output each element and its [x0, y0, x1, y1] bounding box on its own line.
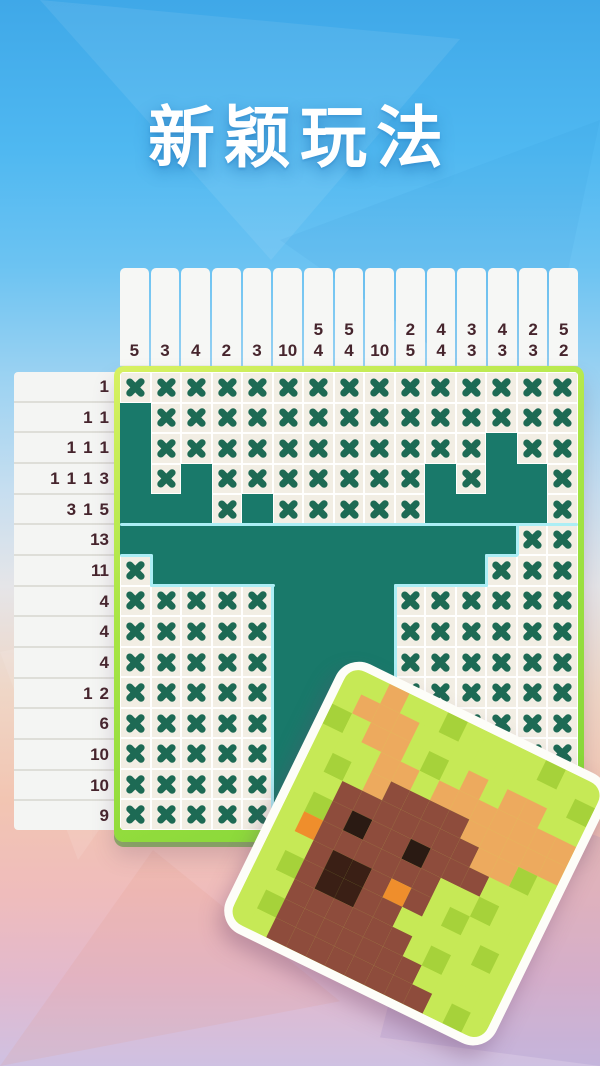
grid-cell-r4c1[interactable]	[120, 464, 151, 495]
grid-cell-r7c9[interactable]	[364, 555, 395, 586]
hint-number: 4	[100, 621, 109, 642]
row-hint-strip-10: 4	[14, 648, 118, 679]
hint-number: 10	[90, 775, 109, 796]
grid-cell-r2c14[interactable]	[517, 403, 548, 434]
grid-cell-r8c2[interactable]	[151, 586, 182, 617]
grid-cell-r1c9[interactable]	[364, 372, 395, 403]
grid-cell-r5c7[interactable]	[303, 494, 334, 525]
grid-cell-r3c2[interactable]	[151, 433, 182, 464]
hint-number: 4	[100, 652, 109, 673]
grid-cell-r9c15[interactable]	[547, 616, 578, 647]
grid-cell-r10c6[interactable]	[273, 647, 304, 678]
grid-cell-r14c5[interactable]	[242, 769, 273, 800]
grid-cell-r6c7[interactable]	[303, 525, 334, 556]
grid-cell-r6c4[interactable]	[212, 525, 243, 556]
grid-cell-r1c15[interactable]	[547, 372, 578, 403]
col-hint-strip-11: 44	[427, 268, 456, 366]
row-hint-strip-4: 1113	[14, 464, 118, 495]
grid-cell-r6c5[interactable]	[242, 525, 273, 556]
grid-cell-r5c8[interactable]	[334, 494, 365, 525]
row-hint-strip-3: 111	[14, 433, 118, 464]
grid-cell-r10c15[interactable]	[547, 647, 578, 678]
grid-cell-r10c5[interactable]	[242, 647, 273, 678]
grid-cell-r5c1[interactable]	[120, 494, 151, 525]
grid-cell-r2c8[interactable]	[334, 403, 365, 434]
row-hints-panel: 1111111113315131144412610109	[14, 372, 118, 830]
grid-cell-r5c14[interactable]	[517, 494, 548, 525]
grid-cell-r3c5[interactable]	[242, 433, 273, 464]
grid-cell-r11c12[interactable]	[456, 677, 487, 708]
grid-cell-r2c11[interactable]	[425, 403, 456, 434]
grid-cell-r10c3[interactable]	[181, 647, 212, 678]
grid-cell-r11c15[interactable]	[547, 677, 578, 708]
row-hint-strip-7: 11	[14, 556, 118, 587]
grid-cell-r3c9[interactable]	[364, 433, 395, 464]
grid-cell-r13c5[interactable]	[242, 738, 273, 769]
row-hint-strip-13: 10	[14, 740, 118, 771]
grid-cell-r2c5[interactable]	[242, 403, 273, 434]
grid-cell-r4c12[interactable]	[456, 464, 487, 495]
grid-cell-r11c6[interactable]	[273, 677, 304, 708]
grid-cell-r9c14[interactable]	[517, 616, 548, 647]
grid-cell-r9c11[interactable]	[425, 616, 456, 647]
hint-number: 5	[130, 340, 139, 361]
page-title: 新颖玩法	[0, 84, 600, 181]
grid-cell-r10c1[interactable]	[120, 647, 151, 678]
grid-cell-r1c1[interactable]	[120, 372, 151, 403]
grid-cell-r4c9[interactable]	[364, 464, 395, 495]
grid-cell-r2c3[interactable]	[181, 403, 212, 434]
grid-cell-r7c2[interactable]	[151, 555, 182, 586]
hint-number: 5	[100, 499, 109, 520]
grid-cell-r1c13[interactable]	[486, 372, 517, 403]
hint-number: 2	[528, 319, 537, 340]
row-hint-strip-5: 315	[14, 495, 118, 526]
hint-number: 9	[100, 805, 109, 826]
grid-cell-r4c3[interactable]	[181, 464, 212, 495]
grid-cell-r12c15[interactable]	[547, 708, 578, 739]
hint-number: 4	[314, 340, 323, 361]
grid-cell-r1c10[interactable]	[395, 372, 426, 403]
grid-cell-r9c8[interactable]	[334, 616, 365, 647]
grid-cell-r5c5[interactable]	[242, 494, 273, 525]
grid-cell-r9c4[interactable]	[212, 616, 243, 647]
grid-cell-r8c3[interactable]	[181, 586, 212, 617]
grid-cell-r11c14[interactable]	[517, 677, 548, 708]
grid-cell-r1c8[interactable]	[334, 372, 365, 403]
grid-cell-r5c4[interactable]	[212, 494, 243, 525]
grid-cell-r1c7[interactable]	[303, 372, 334, 403]
grid-cell-r7c13[interactable]	[486, 555, 517, 586]
hint-number: 3	[100, 468, 109, 489]
hint-number: 10	[90, 744, 109, 765]
col-hint-strip-14: 23	[519, 268, 548, 366]
grid-cell-r7c7[interactable]	[303, 555, 334, 586]
grid-cell-r9c7[interactable]	[303, 616, 334, 647]
hint-number: 1	[83, 468, 92, 489]
grid-cell-r9c6[interactable]	[273, 616, 304, 647]
hint-number: 3	[467, 340, 476, 361]
hint-number: 4	[436, 319, 445, 340]
hint-number: 5	[406, 340, 415, 361]
grid-cell-r5c15[interactable]	[547, 494, 578, 525]
grid-cell-r14c4[interactable]	[212, 769, 243, 800]
hint-number: 10	[370, 340, 389, 361]
grid-cell-r8c7[interactable]	[303, 586, 334, 617]
grid-cell-r10c2[interactable]	[151, 647, 182, 678]
hint-number: 1	[100, 376, 109, 397]
grid-cell-r8c11[interactable]	[425, 586, 456, 617]
grid-cell-r3c7[interactable]	[303, 433, 334, 464]
grid-cell-r10c7[interactable]	[303, 647, 334, 678]
grid-cell-r8c12[interactable]	[456, 586, 487, 617]
grid-cell-r2c4[interactable]	[212, 403, 243, 434]
hint-number: 1	[83, 437, 92, 458]
col-hint-strip-4: 2	[212, 268, 241, 366]
grid-cell-r13c2[interactable]	[151, 738, 182, 769]
grid-cell-r6c13[interactable]	[486, 525, 517, 556]
grid-cell-r1c6[interactable]	[273, 372, 304, 403]
col-hint-strip-8: 54	[335, 268, 364, 366]
hint-number: 13	[90, 529, 109, 550]
hint-number: 2	[100, 683, 109, 704]
grid-cell-r7c3[interactable]	[181, 555, 212, 586]
grid-cell-r12c5[interactable]	[242, 708, 273, 739]
grid-cell-r6c12[interactable]	[456, 525, 487, 556]
row-hint-strip-9: 4	[14, 617, 118, 648]
grid-cell-r7c15[interactable]	[547, 555, 578, 586]
grid-cell-r8c6[interactable]	[273, 586, 304, 617]
col-hint-strip-6: 10	[273, 268, 302, 366]
hint-number: 2	[559, 340, 568, 361]
grid-cell-r12c2[interactable]	[151, 708, 182, 739]
grid-cell-r12c14[interactable]	[517, 708, 548, 739]
grid-cell-r13c4[interactable]	[212, 738, 243, 769]
col-hint-strip-13: 43	[488, 268, 517, 366]
grid-cell-r7c5[interactable]	[242, 555, 273, 586]
grid-cell-r2c2[interactable]	[151, 403, 182, 434]
grid-cell-r13c1[interactable]	[120, 738, 151, 769]
grid-cell-r1c4[interactable]	[212, 372, 243, 403]
grid-cell-r6c10[interactable]	[395, 525, 426, 556]
grid-cell-r7c14[interactable]	[517, 555, 548, 586]
grid-cell-r12c3[interactable]	[181, 708, 212, 739]
grid-cell-r9c10[interactable]	[395, 616, 426, 647]
grid-cell-r7c1[interactable]	[120, 555, 151, 586]
hint-number: 5	[344, 319, 353, 340]
grid-cell-r9c12[interactable]	[456, 616, 487, 647]
hint-number: 4	[100, 591, 109, 612]
col-hint-strip-5: 3	[243, 268, 272, 366]
hint-number: 1	[100, 407, 109, 428]
grid-cell-r11c13[interactable]	[486, 677, 517, 708]
grid-cell-r6c1[interactable]	[120, 525, 151, 556]
grid-cell-r5c12[interactable]	[456, 494, 487, 525]
grid-cell-r3c8[interactable]	[334, 433, 365, 464]
grid-cell-r2c12[interactable]	[456, 403, 487, 434]
grid-cell-r9c3[interactable]	[181, 616, 212, 647]
grid-cell-r11c1[interactable]	[120, 677, 151, 708]
grid-cell-r1c14[interactable]	[517, 372, 548, 403]
grid-cell-r7c4[interactable]	[212, 555, 243, 586]
grid-cell-r14c1[interactable]	[120, 769, 151, 800]
hint-number: 4	[344, 340, 353, 361]
grid-cell-r6c8[interactable]	[334, 525, 365, 556]
grid-cell-r2c7[interactable]	[303, 403, 334, 434]
hint-number: 6	[100, 713, 109, 734]
col-hint-strip-9: 10	[365, 268, 394, 366]
row-hint-strip-6: 13	[14, 525, 118, 556]
grid-cell-r10c14[interactable]	[517, 647, 548, 678]
grid-cell-r4c15[interactable]	[547, 464, 578, 495]
grid-cell-r2c10[interactable]	[395, 403, 426, 434]
hint-number: 2	[222, 340, 231, 361]
hint-number: 1	[67, 468, 76, 489]
grid-cell-r9c13[interactable]	[486, 616, 517, 647]
grid-cell-r4c10[interactable]	[395, 464, 426, 495]
hint-number: 1	[83, 407, 92, 428]
grid-cell-r10c11[interactable]	[425, 647, 456, 678]
grid-cell-r4c14[interactable]	[517, 464, 548, 495]
grid-cell-r14c2[interactable]	[151, 769, 182, 800]
hint-number: 3	[498, 340, 507, 361]
hint-number: 1	[83, 499, 92, 520]
grid-cell-r4c8[interactable]	[334, 464, 365, 495]
grid-cell-r1c11[interactable]	[425, 372, 456, 403]
grid-cell-r4c11[interactable]	[425, 464, 456, 495]
grid-cell-r10c12[interactable]	[456, 647, 487, 678]
grid-cell-r6c9[interactable]	[364, 525, 395, 556]
grid-cell-r10c4[interactable]	[212, 647, 243, 678]
grid-cell-r8c5[interactable]	[242, 586, 273, 617]
row-hint-strip-14: 10	[14, 771, 118, 802]
grid-cell-r3c13[interactable]	[486, 433, 517, 464]
grid-cell-r3c1[interactable]	[120, 433, 151, 464]
grid-cell-r12c6[interactable]	[273, 708, 304, 739]
hint-number: 1	[50, 468, 59, 489]
grid-cell-r7c12[interactable]	[456, 555, 487, 586]
grid-cell-r3c15[interactable]	[547, 433, 578, 464]
grid-cell-r1c2[interactable]	[151, 372, 182, 403]
grid-cell-r11c3[interactable]	[181, 677, 212, 708]
row-hint-strip-11: 12	[14, 679, 118, 710]
grid-cell-r9c2[interactable]	[151, 616, 182, 647]
col-hint-strip-10: 25	[396, 268, 425, 366]
grid-cell-r7c11[interactable]	[425, 555, 456, 586]
grid-cell-r9c5[interactable]	[242, 616, 273, 647]
hint-number: 1	[83, 683, 92, 704]
grid-cell-r15c3[interactable]	[181, 799, 212, 830]
col-hint-strip-7: 54	[304, 268, 333, 366]
grid-cell-r6c14[interactable]	[517, 525, 548, 556]
grid-cell-r8c13[interactable]	[486, 586, 517, 617]
grid-cell-r12c4[interactable]	[212, 708, 243, 739]
grid-cell-r4c4[interactable]	[212, 464, 243, 495]
grid-cell-r6c11[interactable]	[425, 525, 456, 556]
grid-cell-r12c1[interactable]	[120, 708, 151, 739]
grid-cell-r8c14[interactable]	[517, 586, 548, 617]
hint-number: 10	[278, 340, 297, 361]
hint-number: 3	[528, 340, 537, 361]
grid-cell-r4c6[interactable]	[273, 464, 304, 495]
row-hint-strip-15: 9	[14, 801, 118, 830]
row-hint-strip-12: 6	[14, 709, 118, 740]
grid-cell-r7c8[interactable]	[334, 555, 365, 586]
grid-cell-r3c14[interactable]	[517, 433, 548, 464]
row-hint-strip-1: 1	[14, 372, 118, 403]
grid-cell-r5c11[interactable]	[425, 494, 456, 525]
grid-cell-r11c5[interactable]	[242, 677, 273, 708]
grid-cell-r8c8[interactable]	[334, 586, 365, 617]
grid-cell-r11c4[interactable]	[212, 677, 243, 708]
grid-cell-r7c10[interactable]	[395, 555, 426, 586]
grid-cell-r2c9[interactable]	[364, 403, 395, 434]
hint-number: 4	[191, 340, 200, 361]
grid-cell-r9c9[interactable]	[364, 616, 395, 647]
grid-cell-r2c13[interactable]	[486, 403, 517, 434]
grid-cell-r3c4[interactable]	[212, 433, 243, 464]
hint-number: 11	[91, 560, 109, 581]
grid-cell-r4c5[interactable]	[242, 464, 273, 495]
grid-cell-r5c3[interactable]	[181, 494, 212, 525]
hint-number: 1	[67, 437, 76, 458]
grid-cell-r6c3[interactable]	[181, 525, 212, 556]
row-hint-strip-8: 4	[14, 587, 118, 618]
hint-number: 4	[498, 319, 507, 340]
hint-number: 4	[436, 340, 445, 361]
hint-number: 3	[252, 340, 261, 361]
grid-cell-r8c10[interactable]	[395, 586, 426, 617]
hint-number: 3	[467, 319, 476, 340]
row-hint-strip-2: 11	[14, 403, 118, 434]
col-hint-strip-1: 5	[120, 268, 149, 366]
grid-cell-r3c3[interactable]	[181, 433, 212, 464]
grid-cell-r9c1[interactable]	[120, 616, 151, 647]
grid-cell-r1c3[interactable]	[181, 372, 212, 403]
grid-cell-r5c2[interactable]	[151, 494, 182, 525]
grid-cell-r13c3[interactable]	[181, 738, 212, 769]
column-hints-panel: 5342310545410254433432352	[120, 268, 578, 366]
grid-cell-r6c15[interactable]	[547, 525, 578, 556]
grid-cell-r1c5[interactable]	[242, 372, 273, 403]
grid-cell-r15c1[interactable]	[120, 799, 151, 830]
grid-cell-r10c13[interactable]	[486, 647, 517, 678]
grid-cell-r11c2[interactable]	[151, 677, 182, 708]
grid-cell-r5c10[interactable]	[395, 494, 426, 525]
grid-cell-r1c12[interactable]	[456, 372, 487, 403]
col-hint-strip-12: 33	[457, 268, 486, 366]
grid-cell-r2c15[interactable]	[547, 403, 578, 434]
grid-cell-r4c2[interactable]	[151, 464, 182, 495]
col-hint-strip-15: 52	[549, 268, 578, 366]
grid-cell-r15c2[interactable]	[151, 799, 182, 830]
grid-cell-r15c4[interactable]	[212, 799, 243, 830]
grid-cell-r3c6[interactable]	[273, 433, 304, 464]
hint-number: 5	[559, 319, 568, 340]
hint-number: 2	[406, 319, 415, 340]
grid-cell-r2c6[interactable]	[273, 403, 304, 434]
grid-cell-r2c1[interactable]	[120, 403, 151, 434]
hint-number: 5	[314, 319, 323, 340]
grid-cell-r5c13[interactable]	[486, 494, 517, 525]
hint-number: 1	[100, 437, 109, 458]
grid-cell-r8c4[interactable]	[212, 586, 243, 617]
grid-cell-r14c3[interactable]	[181, 769, 212, 800]
grid-cell-r8c15[interactable]	[547, 586, 578, 617]
grid-cell-r3c11[interactable]	[425, 433, 456, 464]
col-hint-strip-3: 4	[181, 268, 210, 366]
grid-cell-r8c1[interactable]	[120, 586, 151, 617]
grid-cell-r4c13[interactable]	[486, 464, 517, 495]
hint-number: 3	[160, 340, 169, 361]
grid-cell-r10c10[interactable]	[395, 647, 426, 678]
grid-cell-r4c7[interactable]	[303, 464, 334, 495]
grid-cell-r5c9[interactable]	[364, 494, 395, 525]
col-hint-strip-2: 3	[151, 268, 180, 366]
grid-cell-r6c2[interactable]	[151, 525, 182, 556]
grid-cell-r3c12[interactable]	[456, 433, 487, 464]
hint-number: 3	[67, 499, 76, 520]
grid-cell-r5c6[interactable]	[273, 494, 304, 525]
grid-cell-r7c6[interactable]	[273, 555, 304, 586]
grid-cell-r8c9[interactable]	[364, 586, 395, 617]
grid-cell-r6c6[interactable]	[273, 525, 304, 556]
grid-cell-r3c10[interactable]	[395, 433, 426, 464]
